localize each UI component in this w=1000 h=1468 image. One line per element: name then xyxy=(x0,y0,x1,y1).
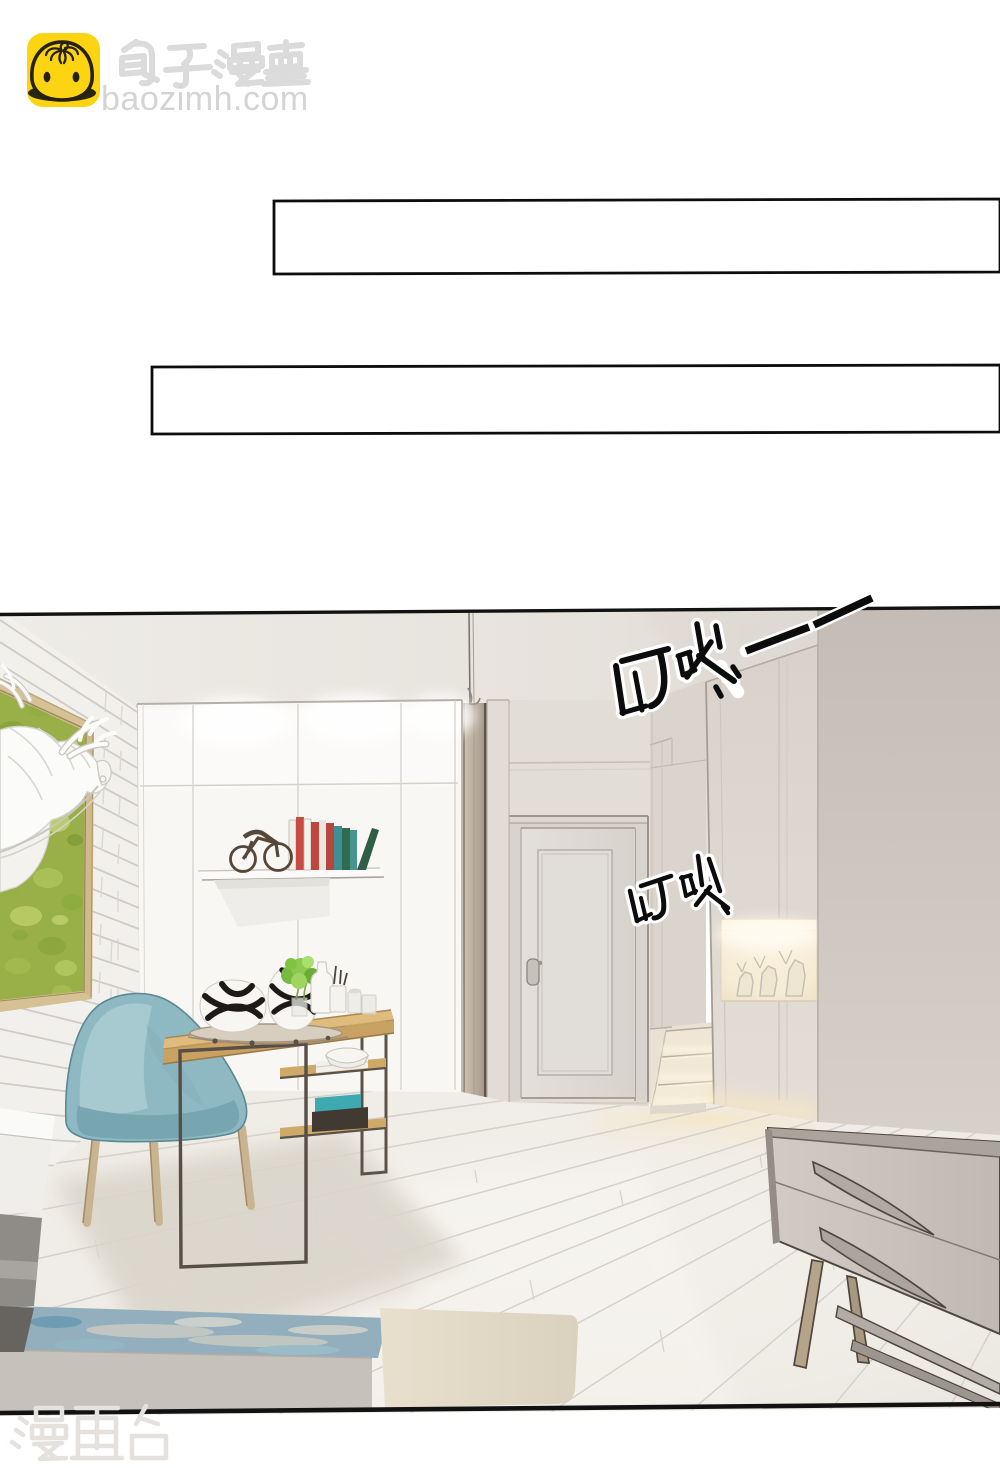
svg-text:baozimh.com: baozimh.com xyxy=(101,80,309,118)
